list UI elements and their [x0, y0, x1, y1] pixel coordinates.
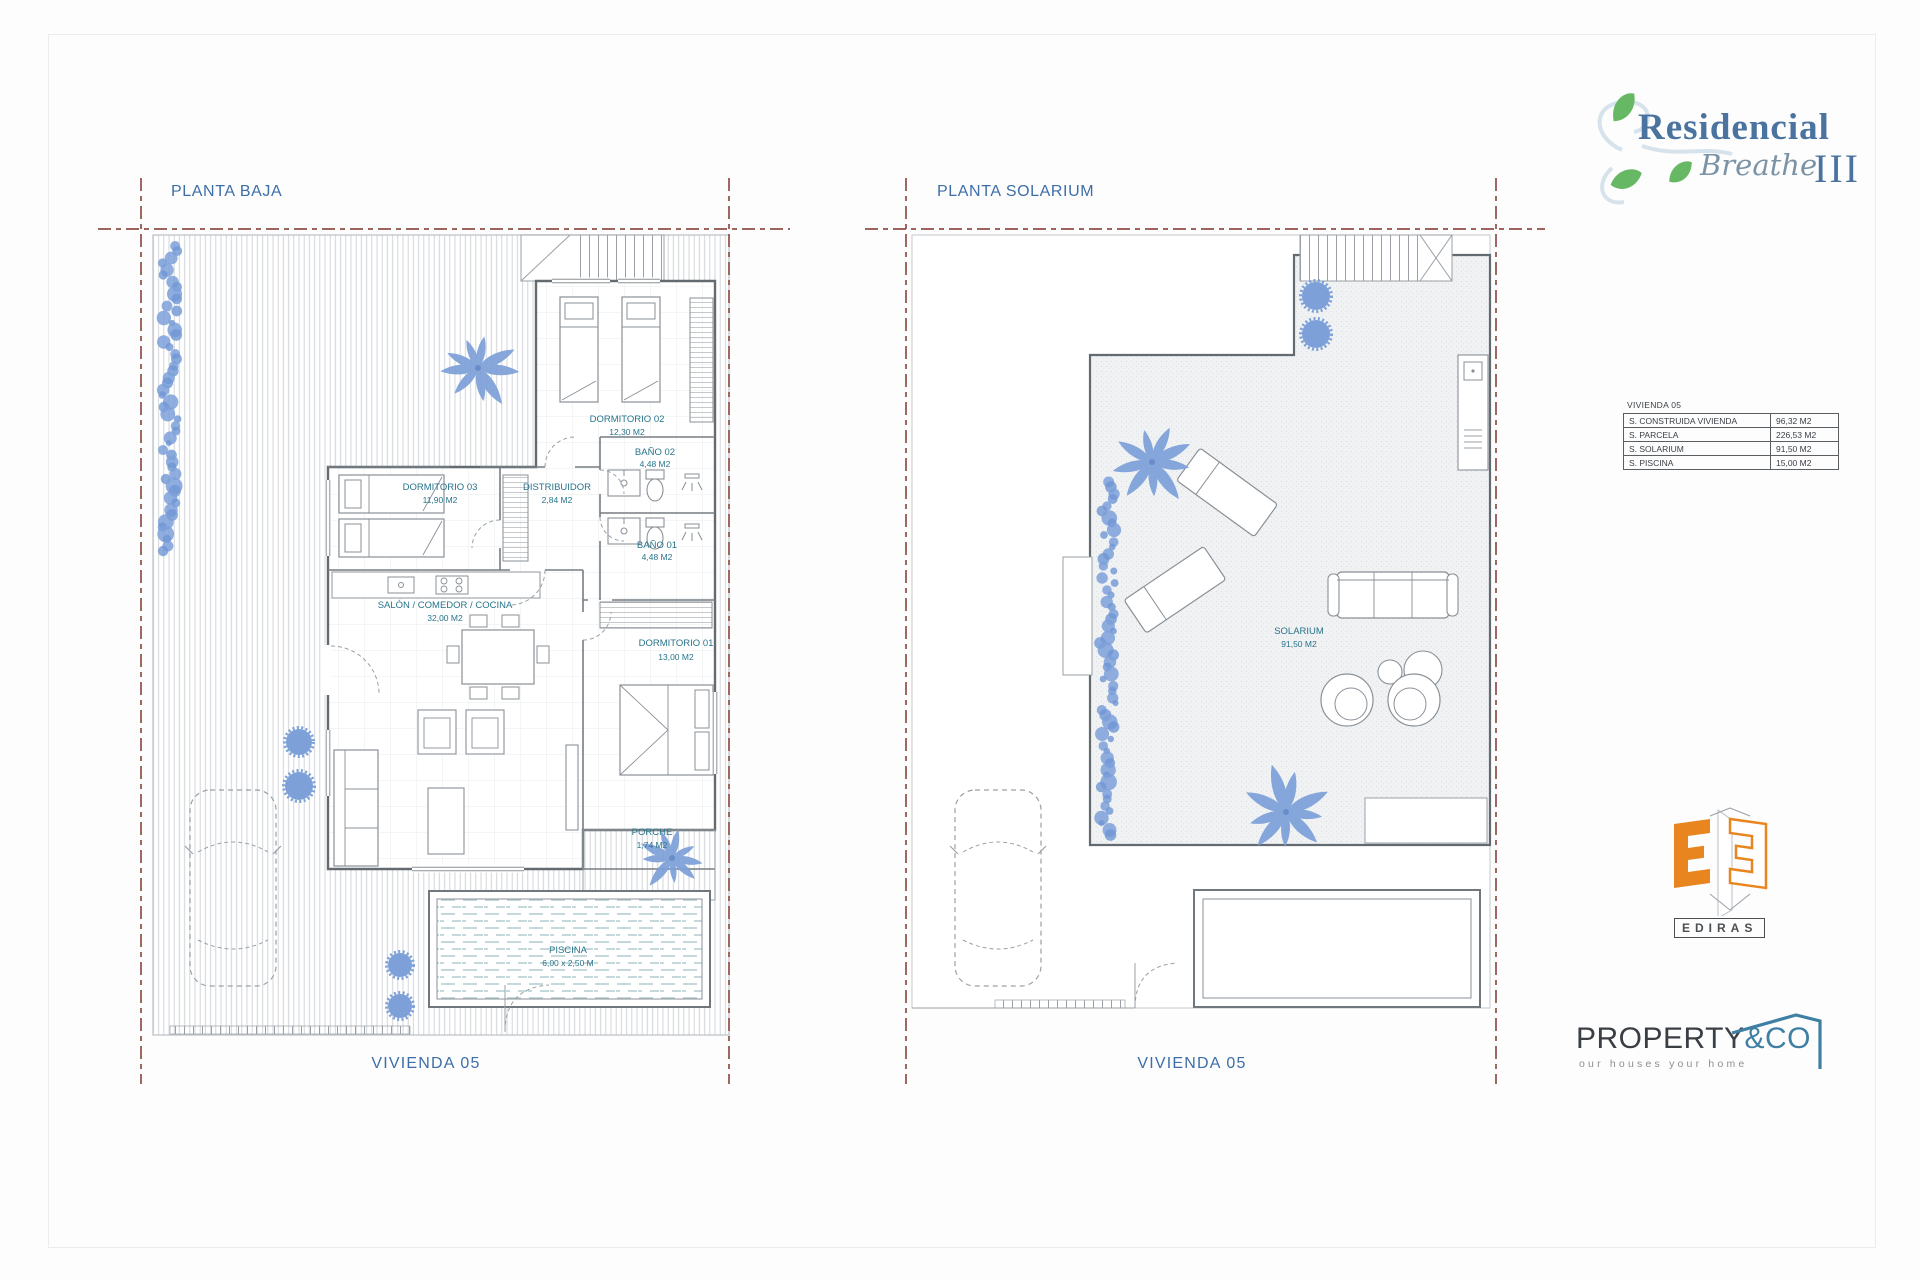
window	[712, 692, 719, 774]
outdoor-shower-unit	[1458, 355, 1488, 470]
areas-table-title: VIVIENDA 05	[1627, 400, 1839, 410]
table-row: S. SOLARIUM 91,50 M2	[1624, 442, 1839, 456]
areas-table: S. CONSTRUIDA VIVIENDA 96,32 M2 S. PARCE…	[1623, 413, 1839, 470]
area-value: 15,00 M2	[1771, 456, 1839, 470]
kitchen-counter	[332, 572, 540, 598]
svg-text:BAÑO 01: BAÑO 01	[637, 540, 677, 551]
table-row: S. PARCELA 226,53 M2	[1624, 428, 1839, 442]
floorplan-sheet: { "plans": [ { "title": "PLANTA BAJA", "…	[0, 0, 1920, 1280]
areas-summary: VIVIENDA 05 S. CONSTRUIDA VIVIENDA 96,32…	[1623, 400, 1839, 470]
property-brand: PROPERTY	[1576, 1022, 1745, 1055]
svg-text:DORMITORIO 02: DORMITORIO 02	[590, 414, 665, 425]
residencial-logo: Residencial Breathe III	[1582, 88, 1902, 218]
roof-icon	[1728, 1007, 1838, 1077]
area-label: S. SOLARIUM	[1624, 442, 1771, 456]
area-label: S. CONSTRUIDA VIVIENDA	[1624, 414, 1771, 428]
table-row: S. PISCINA 15,00 M2	[1624, 456, 1839, 470]
window	[412, 866, 524, 873]
ediras-mark-icon	[1660, 804, 1780, 916]
area-value: 226,53 M2	[1771, 428, 1839, 442]
area-value: 96,32 M2	[1771, 414, 1839, 428]
bedroom1-double-bed	[620, 685, 713, 775]
stairs	[1300, 235, 1452, 281]
plan1-footer: VIVIENDA 05	[346, 1055, 506, 1073]
deck-bumpout	[1063, 557, 1092, 675]
svg-text:SOLARIUM: SOLARIUM	[1274, 626, 1324, 637]
table-row: S. CONSTRUIDA VIVIENDA 96,32 M2	[1624, 414, 1839, 428]
svg-text:6,00 x 2,50 M: 6,00 x 2,50 M	[542, 958, 594, 968]
svg-text:BAÑO 02: BAÑO 02	[635, 447, 675, 458]
plan2-footer: VIVIENDA 05	[1112, 1055, 1272, 1073]
svg-text:2,84 M2: 2,84 M2	[542, 495, 573, 505]
svg-text:32,00 M2: 32,00 M2	[427, 613, 463, 623]
svg-text:PISCINA: PISCINA	[549, 945, 588, 956]
svg-text:DORMITORIO 01: DORMITORIO 01	[639, 638, 714, 649]
sofa	[334, 750, 378, 866]
svg-text:1,74 M2: 1,74 M2	[637, 840, 668, 850]
svg-text:91,50 M2: 91,50 M2	[1281, 639, 1317, 649]
svg-text:PORCHE: PORCHE	[632, 827, 673, 838]
main-door-gap	[324, 645, 332, 695]
brand-name: Residencial	[1638, 106, 1830, 149]
svg-text:4,48 M2: 4,48 M2	[640, 459, 671, 469]
svg-text:4,48 M2: 4,48 M2	[642, 552, 673, 562]
area-label: S. PARCELA	[1624, 428, 1771, 442]
plan-planta-baja	[98, 178, 790, 1084]
plan2-title: PLANTA SOLARIUM	[937, 183, 1094, 201]
property-co-logo: PROPERTY&CO our houses your home	[1576, 1022, 1826, 1102]
window	[618, 278, 660, 285]
stairs	[521, 235, 664, 281]
svg-text:DORMITORIO 03: DORMITORIO 03	[403, 482, 478, 493]
brand-script: Breathe	[1700, 148, 1817, 182]
outdoor-sofa	[1328, 572, 1458, 618]
plan-planta-solarium	[865, 178, 1545, 1084]
plan1-title: PLANTA BAJA	[171, 183, 282, 201]
svg-text:SALÓN / COMEDOR / COCINA: SALÓN / COMEDOR / COCINA	[378, 600, 513, 611]
svg-text:13,00 M2: 13,00 M2	[658, 652, 694, 662]
coffee-table	[428, 788, 464, 854]
svg-text:11,90 M2: 11,90 M2	[423, 495, 458, 505]
area-value: 91,50 M2	[1771, 442, 1839, 456]
ediras-label: EDIRAS	[1674, 918, 1765, 938]
svg-text:DISTRIBUIDOR: DISTRIBUIDOR	[523, 482, 591, 493]
ediras-logo: EDIRAS	[1660, 804, 1780, 944]
tv-unit	[566, 745, 578, 830]
window	[325, 480, 332, 556]
window	[552, 278, 610, 285]
brand-numeral: III	[1814, 145, 1860, 192]
pool-outline	[1194, 890, 1480, 1007]
area-label: S. PISCINA	[1624, 456, 1771, 470]
deck-inset	[1365, 798, 1487, 843]
svg-text:12,30 M2: 12,30 M2	[609, 427, 645, 437]
window	[325, 730, 332, 796]
